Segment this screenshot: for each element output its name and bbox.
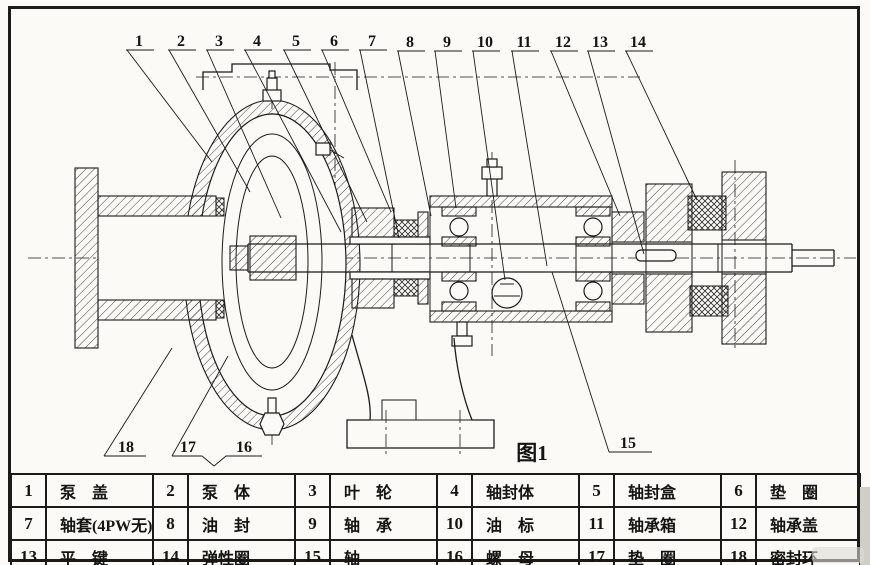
part-no: 4 (437, 474, 472, 507)
callout-1: 1 (135, 33, 143, 50)
callout-10: 10 (477, 34, 493, 51)
part-no: 16 (437, 540, 472, 565)
shaft-sleeve-top (350, 237, 430, 244)
parts-row-3: 13 平 键 14 弹性圈 15 轴 16 螺 母 17 垫 圈 18 密封环 (11, 540, 860, 565)
part-no: 17 (579, 540, 614, 565)
oil-gauge (492, 278, 522, 308)
elastic-ring-bottom (690, 286, 728, 316)
callout-15: 15 (620, 435, 636, 452)
grease-cup (482, 167, 502, 179)
part-no: 15 (295, 540, 330, 565)
callout-9: 9 (443, 34, 451, 51)
pump-drawing-sheet: 1 2 3 4 5 6 7 8 9 10 11 12 13 14 18 17 1… (0, 0, 870, 565)
callout-3: 3 (215, 33, 223, 50)
callout-2: 2 (177, 33, 185, 50)
callout-7: 7 (368, 33, 376, 50)
parts-row-2: 7 轴套(4PW无) 8 油 封 9 轴 承 10 油 标 11 轴承箱 12 … (11, 507, 860, 540)
impeller-nut (230, 246, 248, 270)
callout-11: 11 (516, 34, 531, 51)
support-foot (347, 335, 494, 448)
part-no: 2 (153, 474, 188, 507)
shaft-sleeve-bottom (350, 272, 430, 279)
drain-plug-stem (457, 322, 467, 336)
part-no: 3 (295, 474, 330, 507)
part-no: 10 (437, 507, 472, 540)
callout-17: 17 (180, 439, 196, 456)
parts-table: 1 泵 盖 2 泵 体 3 叶 轮 4 轴封体 5 轴封盒 6 垫 圈 7 轴套… (10, 473, 861, 565)
part-name: 螺 母 (472, 540, 579, 565)
part-name: 轴套(4PW无) (46, 507, 153, 540)
part-name: 叶 轮 (330, 474, 437, 507)
part-no: 18 (721, 540, 756, 565)
callout-12: 12 (555, 34, 571, 51)
parts-row-1: 1 泵 盖 2 泵 体 3 叶 轮 4 轴封体 5 轴封盒 6 垫 圈 (11, 474, 860, 507)
scan-artifact (812, 547, 864, 563)
inlet-gasket-bottom (216, 300, 224, 318)
part-name: 平 键 (46, 540, 153, 565)
part-no: 13 (11, 540, 46, 565)
shaft-keyway (636, 250, 676, 261)
part-name: 泵 体 (188, 474, 295, 507)
part-name: 轴承盖 (756, 507, 860, 540)
part-name: 轴承箱 (614, 507, 721, 540)
part-no: 1 (11, 474, 46, 507)
part-name: 轴 承 (330, 507, 437, 540)
callout-5: 5 (292, 33, 300, 50)
callout-18: 18 (118, 439, 134, 456)
bearings (442, 207, 610, 311)
part-no: 7 (11, 507, 46, 540)
part-name: 油 封 (188, 507, 295, 540)
part-name: 垫 圈 (614, 540, 721, 565)
impeller-hub (250, 236, 296, 280)
pump-section-figure: 1 2 3 4 5 6 7 8 9 10 11 12 13 14 18 17 1… (0, 0, 870, 470)
part-name: 弹性圈 (188, 540, 295, 565)
part-no: 12 (721, 507, 756, 540)
part-no: 9 (295, 507, 330, 540)
bearing-housing (430, 159, 612, 346)
callout-13: 13 (592, 34, 608, 51)
part-name: 轴封盒 (614, 474, 721, 507)
inlet-gasket-top (216, 198, 224, 216)
callout-4: 4 (253, 33, 261, 50)
part-no: 5 (579, 474, 614, 507)
part-no: 8 (153, 507, 188, 540)
callout-8: 8 (406, 34, 414, 51)
part-name: 泵 盖 (46, 474, 153, 507)
callout-6: 6 (330, 33, 338, 50)
figure-caption: 图1 (516, 441, 548, 465)
part-no: 6 (721, 474, 756, 507)
part-name: 轴封体 (472, 474, 579, 507)
elastic-ring-top (688, 196, 726, 230)
part-name: 油 标 (472, 507, 579, 540)
part-no: 11 (579, 507, 614, 540)
callout-16: 16 (236, 439, 252, 456)
part-name: 轴 (330, 540, 437, 565)
part-no: 14 (153, 540, 188, 565)
callout-14: 14 (630, 34, 646, 51)
part-name: 垫 圈 (756, 474, 860, 507)
